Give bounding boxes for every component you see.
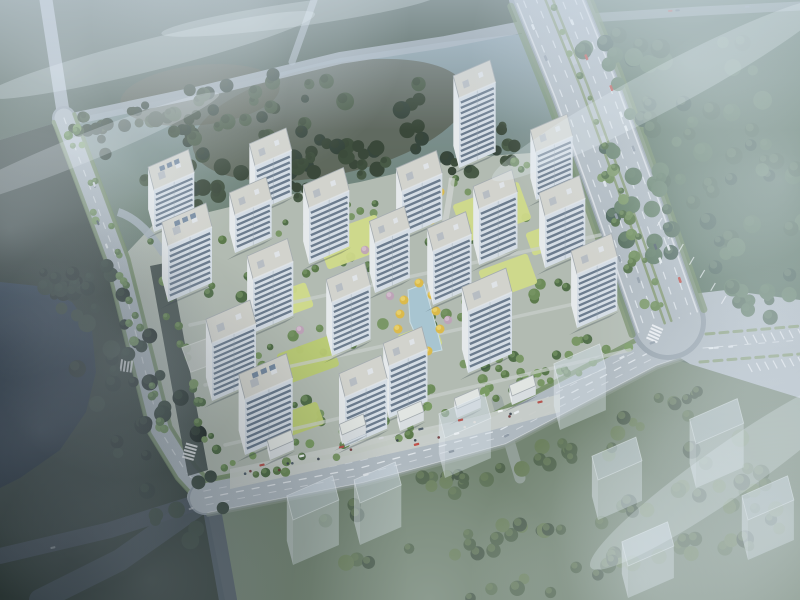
rendering-stage bbox=[0, 0, 800, 600]
fog-atmosphere-layer bbox=[0, 0, 800, 600]
aerial-site-rendering bbox=[0, 0, 800, 600]
